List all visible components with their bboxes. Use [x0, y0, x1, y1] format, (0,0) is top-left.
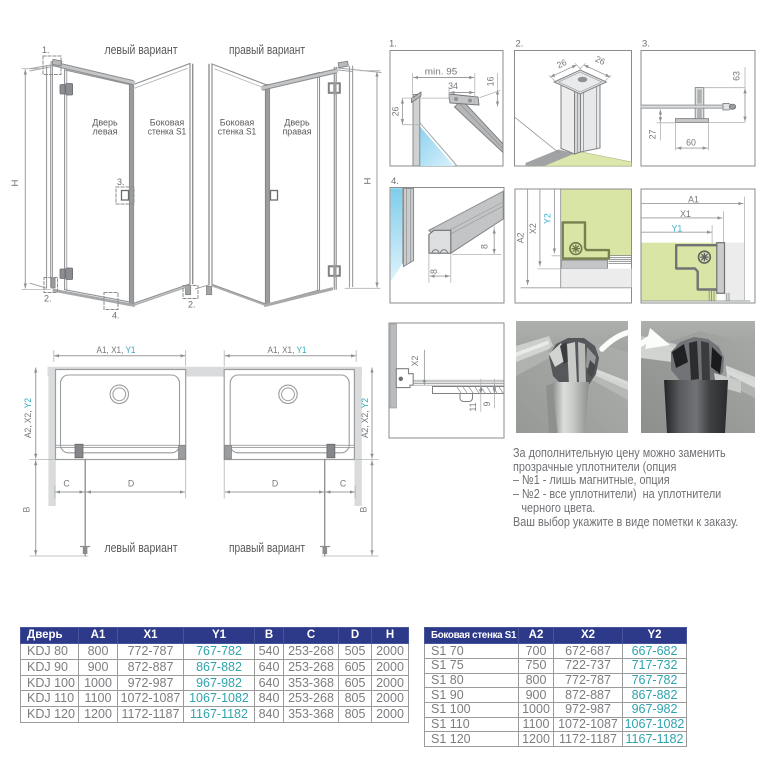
svg-text:левый вариант: левый вариант [105, 43, 178, 57]
svg-text:2.: 2. [188, 300, 196, 310]
svg-text:D: D [272, 479, 278, 489]
svg-text:C: C [340, 479, 347, 489]
svg-text:8: 8 [429, 269, 439, 274]
svg-text:A2, X2, Y2: A2, X2, Y2 [23, 398, 33, 438]
svg-text:левая: левая [93, 127, 118, 138]
svg-text:правый вариант: правый вариант [229, 43, 305, 57]
svg-text:A2: A2 [516, 232, 526, 243]
svg-text:A1, X1, Y1: A1, X1, Y1 [97, 345, 136, 355]
svg-text:2.: 2. [516, 39, 524, 50]
svg-text:стенка S1: стенка S1 [218, 127, 257, 138]
svg-text:D: D [128, 479, 134, 489]
svg-text:A1, X1, Y1: A1, X1, Y1 [268, 345, 307, 355]
svg-text:3.: 3. [117, 177, 125, 187]
svg-text:C: C [63, 479, 70, 489]
svg-text:1.: 1. [389, 39, 397, 50]
svg-text:правый вариант: правый вариант [229, 541, 305, 555]
svg-text:Y2: Y2 [542, 213, 552, 224]
svg-text:8: 8 [480, 244, 490, 249]
svg-text:стенка S1: стенка S1 [148, 127, 187, 138]
svg-text:9: 9 [482, 401, 492, 406]
svg-text:H: H [363, 177, 374, 184]
svg-text:11: 11 [468, 402, 478, 411]
svg-text:X2: X2 [410, 356, 420, 367]
svg-text:34: 34 [448, 81, 458, 91]
svg-text:2.: 2. [44, 294, 52, 304]
svg-text:60: 60 [686, 138, 696, 148]
svg-text:левый вариант: левый вариант [105, 541, 178, 555]
svg-text:A2, X2, Y2: A2, X2, Y2 [360, 398, 370, 438]
svg-text:B: B [22, 506, 32, 512]
svg-text:4.: 4. [112, 311, 120, 321]
svg-text:27: 27 [648, 130, 658, 140]
svg-text:3.: 3. [642, 39, 650, 50]
svg-text:X2: X2 [528, 223, 538, 234]
svg-text:4.: 4. [391, 176, 399, 187]
svg-text:min. 95: min. 95 [425, 67, 458, 77]
svg-text:H: H [10, 179, 21, 186]
svg-text:правая: правая [283, 127, 312, 138]
svg-text:B: B [359, 506, 369, 512]
svg-text:16: 16 [486, 77, 496, 87]
svg-text:63: 63 [732, 71, 742, 81]
svg-text:1.: 1. [42, 45, 50, 55]
svg-text:26: 26 [391, 107, 401, 117]
